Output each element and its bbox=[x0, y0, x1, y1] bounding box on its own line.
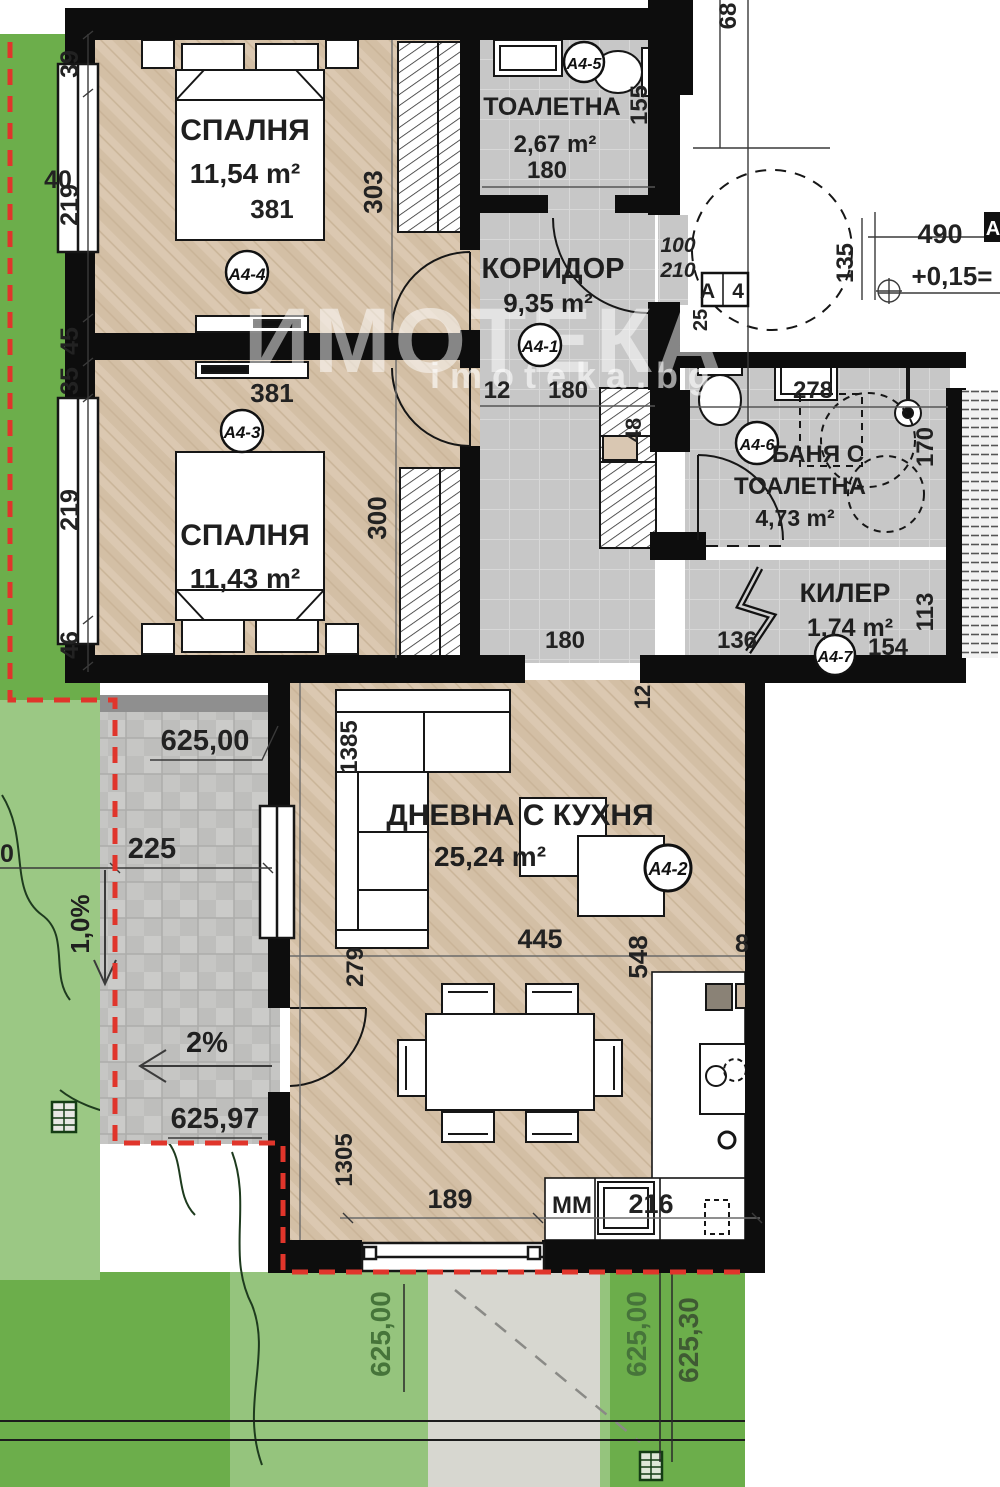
wall-top bbox=[65, 8, 660, 40]
wall-left bbox=[65, 250, 95, 338]
pillow bbox=[182, 620, 244, 652]
toilet-sink bbox=[494, 34, 562, 76]
bath-name-2: ТОАЛЕТНА bbox=[734, 473, 866, 500]
living-tag: A4-2 bbox=[647, 859, 687, 879]
corridor-width: 180 bbox=[548, 377, 588, 404]
bedroom1-tag: A4-4 bbox=[228, 265, 266, 284]
dining-table bbox=[426, 1014, 594, 1110]
storage-name: КИЛЕР bbox=[800, 578, 891, 608]
bedroom2-area: 11,43 m² bbox=[190, 563, 301, 594]
nightstand bbox=[142, 40, 174, 68]
wall-corridor-left bbox=[460, 38, 480, 250]
wall-living-right bbox=[745, 683, 765, 1273]
patio-elev-top: 625,00 bbox=[161, 725, 250, 757]
corridor-name: КОРИДОР bbox=[481, 253, 624, 285]
washer-label: ММ bbox=[552, 1192, 592, 1219]
toilet-area: 2,67 m² bbox=[514, 131, 597, 158]
corridor-tag: A4-1 bbox=[521, 337, 559, 356]
patio-elev-bottom: 625,97 bbox=[171, 1103, 260, 1135]
toilet-tag: A4-5 bbox=[566, 56, 603, 73]
offset-135: 135 bbox=[832, 243, 859, 283]
storage-width-right: 154 bbox=[868, 634, 909, 661]
corridor-closet bbox=[600, 388, 656, 548]
corridor-bottom-width: 180 bbox=[545, 627, 585, 654]
level-mark: +0,15= bbox=[912, 261, 993, 291]
grass-wash-left bbox=[0, 700, 100, 1280]
bath-area: 4,73 m² bbox=[755, 505, 835, 531]
bedroom1-bed-width: 381 bbox=[250, 194, 293, 224]
section-marker-cut: A bbox=[984, 212, 1000, 242]
terrace-door bbox=[362, 1243, 544, 1271]
living-dim-216: 216 bbox=[628, 1189, 673, 1219]
section-label-cut: A bbox=[986, 218, 1000, 240]
living-dim-548: 548 bbox=[623, 935, 653, 978]
width-490: 490 bbox=[917, 219, 962, 249]
chair bbox=[526, 984, 578, 1014]
bath-tag: A4-6 bbox=[739, 437, 775, 454]
chair bbox=[442, 984, 494, 1014]
dim-left-35: 35 bbox=[56, 367, 84, 395]
insulation-strip bbox=[962, 390, 998, 658]
top-dim-cut: 68 bbox=[715, 3, 742, 30]
corridor-wall-12: 12 bbox=[484, 377, 511, 404]
floor-plan-drawing: ИМОТЕКА imoteka.bg СПАЛНЯ 11,54 m² 381 A… bbox=[0, 0, 1000, 1487]
bath-name-1: БАНЯ С bbox=[772, 441, 864, 468]
dim-left-45: 45 bbox=[56, 327, 84, 355]
garden-elev-mid: 625,00 bbox=[621, 1291, 652, 1377]
closet-depth: 48 bbox=[621, 418, 646, 442]
corridor-area: 9,35 m² bbox=[503, 288, 593, 318]
slope-2-label: 2% bbox=[186, 1027, 228, 1059]
chair bbox=[442, 1112, 494, 1142]
chair bbox=[398, 1040, 428, 1096]
section-label: A 4 bbox=[700, 280, 750, 303]
wall-living-top-left bbox=[65, 655, 525, 683]
dim-left-219b: 219 bbox=[56, 489, 84, 531]
pillow bbox=[256, 620, 318, 652]
living-dim-8: 8 bbox=[735, 930, 749, 958]
nightstand bbox=[326, 624, 358, 654]
chair bbox=[526, 1112, 578, 1142]
patio-width-cut: 0 bbox=[0, 840, 14, 868]
wall-top-right-corner bbox=[648, 0, 693, 95]
nightstand bbox=[142, 624, 174, 654]
storage-width-left: 136 bbox=[717, 627, 757, 654]
bedroom2-name: СПАЛНЯ bbox=[180, 519, 310, 552]
door-size-height: 210 bbox=[659, 259, 695, 282]
bedroom1-name: СПАЛНЯ bbox=[180, 114, 310, 147]
floor-plan-screenshot: ИМОТЕКА imoteka.bg СПАЛНЯ 11,54 m² 381 A… bbox=[0, 0, 1000, 1487]
wall-storage-bottom bbox=[650, 655, 966, 683]
toilet-width: 180 bbox=[527, 157, 567, 184]
window-living bbox=[260, 806, 294, 938]
bedroom1-area: 11,54 m² bbox=[190, 158, 301, 189]
patio-edge-strip bbox=[100, 695, 280, 712]
bath-depth: 170 bbox=[912, 427, 939, 467]
storage-tag: A4-7 bbox=[817, 649, 854, 666]
bath-width: 278 bbox=[793, 377, 833, 404]
garden-elev-left: 625,00 bbox=[365, 1291, 396, 1377]
wall-living-left bbox=[268, 683, 290, 808]
wall-stub-12: 12 bbox=[630, 685, 655, 709]
wall-bath-left bbox=[650, 390, 690, 452]
wall-toilet-bottom bbox=[480, 195, 548, 213]
nightstand bbox=[326, 40, 358, 68]
dim-left-46: 46 bbox=[56, 631, 84, 659]
door-size-width: 100 bbox=[660, 234, 695, 257]
living-dim-279: 279 bbox=[342, 947, 369, 987]
living-dim-1305: 1305 bbox=[331, 1133, 358, 1186]
dim-left-39: 39 bbox=[56, 50, 84, 78]
toilet-name: ТОАЛЕТНА bbox=[483, 93, 620, 121]
chair bbox=[592, 1040, 622, 1096]
drain-grate-patio bbox=[52, 1102, 76, 1132]
slope-1-label: 1,0% bbox=[65, 894, 95, 953]
bedroom2-depth: 300 bbox=[362, 496, 392, 539]
living-dim-1385: 1385 bbox=[336, 720, 363, 773]
garden-path bbox=[428, 1272, 600, 1487]
bedroom2-bed-width: 381 bbox=[250, 378, 293, 408]
living-area: 25,24 m² bbox=[434, 841, 546, 872]
wall-living-bottom bbox=[542, 1240, 765, 1273]
storage-depth: 113 bbox=[912, 593, 939, 632]
patio-width: 225 bbox=[128, 833, 176, 865]
bedroom2-tag: A4-3 bbox=[223, 423, 261, 442]
bedroom1-depth: 303 bbox=[358, 170, 388, 213]
drain-grate-garden bbox=[640, 1452, 662, 1480]
wall-dim-25: 25 bbox=[690, 309, 712, 331]
living-dim-189: 189 bbox=[427, 1184, 472, 1214]
patio-pavers bbox=[100, 712, 280, 1144]
window-width-label: 40 bbox=[44, 166, 72, 194]
garden-elev-right: 625,30 bbox=[673, 1297, 704, 1383]
toilet-depth: 155 bbox=[626, 85, 653, 125]
section-marker: A 4 bbox=[700, 273, 750, 306]
living-name: ДНЕВНА С КУХНЯ bbox=[386, 799, 653, 832]
wall-living-left bbox=[268, 1092, 290, 1242]
wall-living-left bbox=[268, 936, 290, 1008]
living-dim-445: 445 bbox=[517, 924, 562, 954]
wall-corridor-left bbox=[460, 446, 480, 663]
